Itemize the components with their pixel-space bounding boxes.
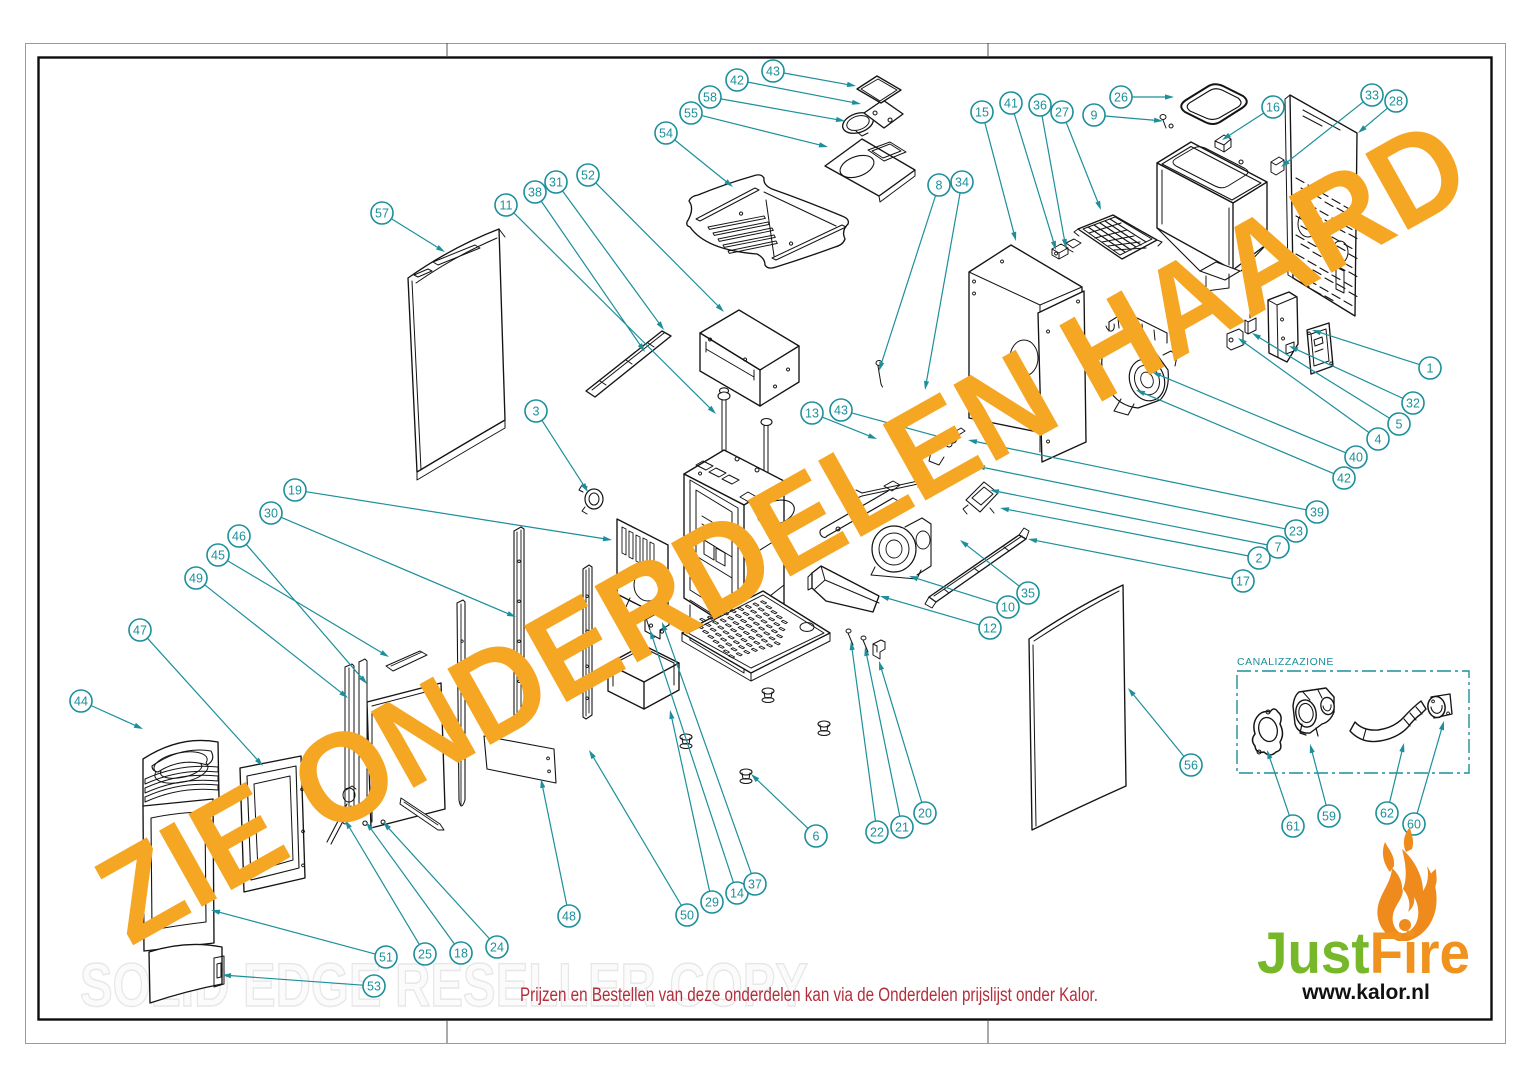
- svg-text:11: 11: [500, 198, 513, 212]
- svg-text:1: 1: [1427, 361, 1434, 375]
- svg-text:49: 49: [189, 571, 203, 585]
- svg-text:51: 51: [379, 950, 393, 964]
- svg-text:33: 33: [1365, 88, 1379, 102]
- svg-text:23: 23: [1289, 524, 1303, 538]
- svg-text:27: 27: [1055, 105, 1069, 119]
- svg-text:9: 9: [1091, 108, 1098, 122]
- svg-text:43: 43: [766, 64, 780, 78]
- svg-text:Prijzen en Bestellen van deze: Prijzen en Bestellen van deze onderdelen…: [520, 985, 1098, 1006]
- svg-text:20: 20: [918, 806, 932, 820]
- svg-text:JustFire: JustFire: [1257, 921, 1470, 986]
- svg-text:3: 3: [533, 404, 540, 418]
- svg-text:62: 62: [1380, 806, 1394, 820]
- svg-text:52: 52: [581, 168, 595, 182]
- svg-text:42: 42: [1337, 471, 1351, 485]
- svg-text:2: 2: [1256, 551, 1263, 565]
- svg-text:18: 18: [454, 946, 468, 960]
- svg-text:5: 5: [1396, 417, 1403, 431]
- svg-text:17: 17: [1236, 574, 1250, 588]
- svg-text:54: 54: [659, 126, 673, 140]
- svg-text:26: 26: [1114, 90, 1128, 104]
- svg-text:25: 25: [418, 947, 432, 961]
- svg-text:50: 50: [680, 908, 694, 922]
- svg-text:www.kalor.nl: www.kalor.nl: [1301, 981, 1430, 1004]
- svg-text:35: 35: [1021, 586, 1035, 600]
- svg-text:38: 38: [528, 185, 542, 199]
- svg-text:57: 57: [375, 206, 389, 220]
- svg-text:59: 59: [1322, 809, 1336, 823]
- svg-text:36: 36: [1033, 98, 1047, 112]
- svg-text:30: 30: [264, 506, 278, 520]
- svg-text:12: 12: [983, 621, 997, 635]
- svg-text:39: 39: [1310, 505, 1324, 519]
- svg-text:34: 34: [955, 175, 969, 189]
- svg-text:41: 41: [1004, 96, 1018, 110]
- svg-text:10: 10: [1001, 600, 1015, 614]
- svg-text:4: 4: [1375, 432, 1382, 446]
- svg-text:15: 15: [975, 105, 989, 119]
- svg-text:40: 40: [1349, 450, 1363, 464]
- svg-text:21: 21: [895, 820, 909, 834]
- svg-text:53: 53: [367, 979, 381, 993]
- svg-text:42: 42: [730, 73, 744, 87]
- svg-text:45: 45: [211, 548, 225, 562]
- svg-text:44: 44: [74, 694, 88, 708]
- svg-text:22: 22: [870, 825, 884, 839]
- svg-text:31: 31: [549, 175, 563, 189]
- svg-text:13: 13: [805, 406, 819, 420]
- svg-text:58: 58: [703, 90, 717, 104]
- svg-text:16: 16: [1266, 100, 1280, 114]
- svg-text:46: 46: [232, 529, 246, 543]
- svg-text:CANALIZZAZIONE: CANALIZZAZIONE: [1237, 656, 1334, 668]
- svg-text:29: 29: [705, 895, 719, 909]
- svg-text:55: 55: [684, 106, 698, 120]
- svg-text:7: 7: [1275, 540, 1282, 554]
- svg-text:32: 32: [1406, 396, 1420, 410]
- svg-text:48: 48: [562, 909, 576, 923]
- svg-text:37: 37: [748, 877, 762, 891]
- svg-text:8: 8: [936, 178, 943, 192]
- svg-text:24: 24: [490, 940, 504, 954]
- svg-text:61: 61: [1286, 819, 1300, 833]
- svg-text:6: 6: [813, 829, 820, 843]
- svg-text:47: 47: [133, 623, 147, 637]
- svg-text:19: 19: [288, 483, 302, 497]
- svg-text:14: 14: [730, 886, 744, 900]
- svg-text:56: 56: [1184, 758, 1198, 772]
